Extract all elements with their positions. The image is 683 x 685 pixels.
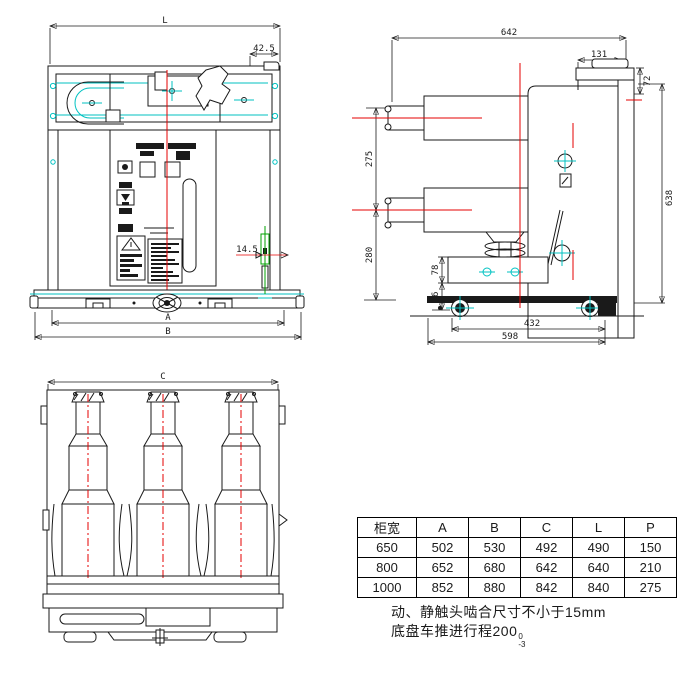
dim-280: 280: [364, 210, 396, 300]
charge-indicator: [117, 182, 134, 214]
side-trolley: [410, 296, 644, 320]
front-top-mechanism: [48, 62, 280, 130]
front-panel: [110, 130, 216, 286]
table-row: 800 652 680 642 640 210: [358, 558, 677, 578]
interlock-hub: [153, 294, 181, 312]
table-cell: 642: [521, 558, 573, 578]
dim-280-label: 280: [365, 247, 375, 263]
table-header-cell: 柜宽: [358, 518, 417, 538]
table-header-cell: C: [521, 518, 573, 538]
dim-C-label: C: [160, 372, 165, 382]
table-cell: 490: [573, 538, 625, 558]
table-cell: 530: [469, 538, 521, 558]
table-row: 1000 852 880 842 840 275: [358, 578, 677, 598]
dim-598-label: 598: [502, 332, 518, 342]
table-header-cell: P: [625, 518, 677, 538]
table-cell: 1000: [358, 578, 417, 598]
notes: 动、静触头啮合尺寸不小于15mm 底盘车推进行程2000-3: [391, 603, 606, 649]
tolerance: 0-3: [518, 633, 525, 649]
table-cell: 880: [469, 578, 521, 598]
table-cell: 275: [625, 578, 677, 598]
table-header-cell: A: [417, 518, 469, 538]
bottom-view: C P P: [28, 362, 328, 677]
dim-A: A: [52, 310, 284, 326]
table-cell: 840: [573, 578, 625, 598]
upper-bushing-arm: [352, 96, 528, 140]
dim-B-label: B: [165, 327, 170, 337]
table-cell: 852: [417, 578, 469, 598]
contact-box: [448, 257, 548, 283]
dim-L-label: L: [162, 16, 167, 26]
side-view: 642 131 72 638: [352, 8, 682, 360]
top-bracket: [576, 68, 634, 80]
charging-socket: [118, 224, 133, 232]
dim-corner-label: 42.5: [253, 44, 275, 54]
front-view: L 42.5: [22, 12, 312, 357]
table-cell: 640: [573, 558, 625, 578]
table-cell: 210: [625, 558, 677, 578]
table-cell: 150: [625, 538, 677, 558]
table-header-cell: B: [469, 518, 521, 538]
dim-432-label: 432: [524, 319, 540, 329]
dim-275-label: 275: [365, 151, 375, 167]
table-header-row: 柜宽 A B C L P: [358, 518, 677, 538]
table-row: 650 502 530 492 490 150: [358, 538, 677, 558]
earthing-contact: [598, 300, 616, 316]
dim-C: C: [48, 372, 278, 392]
operation-counter: [118, 161, 132, 173]
drawing-canvas: L 42.5: [0, 0, 683, 685]
dim-642-label: 642: [501, 28, 517, 38]
dim-A-label: A: [165, 313, 171, 323]
dim-engagement-label: 14.5: [236, 245, 258, 255]
dim-78-label: 78: [431, 265, 441, 276]
dim-78: 78: [431, 257, 450, 283]
table-cell: 800: [358, 558, 417, 578]
note-travel: 底盘车推进行程2000-3: [391, 622, 606, 649]
table-header-cell: L: [573, 518, 625, 538]
table-cell: 650: [358, 538, 417, 558]
front-bottom-rail: [30, 290, 304, 312]
nameplate: [148, 239, 182, 283]
dimension-table: 柜宽 A B C L P 650 502 530 492 490 150 800…: [357, 517, 677, 598]
table-cell: 680: [469, 558, 521, 578]
table-cell: 492: [521, 538, 573, 558]
dim-72-label: 72: [643, 76, 653, 87]
lower-bushing-arm: [352, 188, 528, 257]
dim-638-label: 638: [665, 190, 675, 206]
warning-label: [117, 236, 145, 280]
table-cell: 842: [521, 578, 573, 598]
dim-L: L: [50, 16, 280, 64]
note-engagement: 动、静触头啮合尺寸不小于15mm: [391, 603, 606, 622]
table-cell: 652: [417, 558, 469, 578]
table-cell: 502: [417, 538, 469, 558]
